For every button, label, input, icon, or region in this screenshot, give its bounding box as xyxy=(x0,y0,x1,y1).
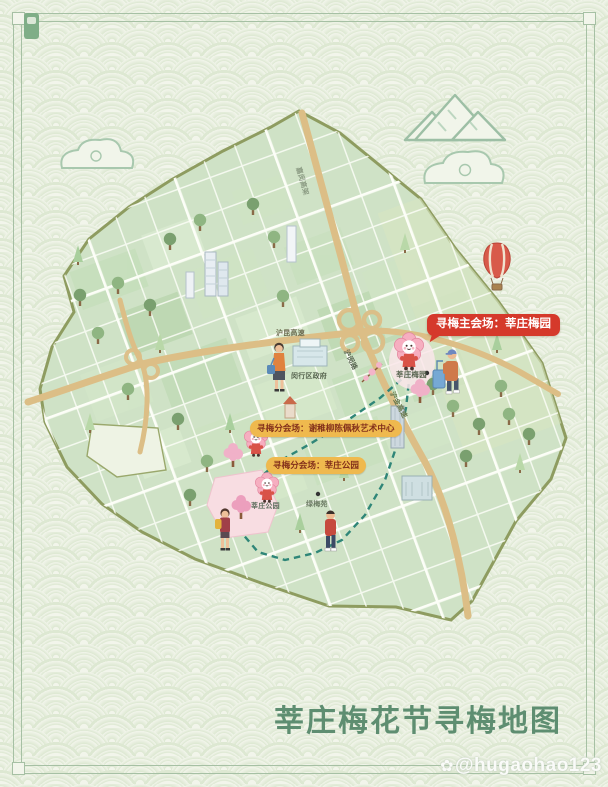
main-venue-label: 寻梅主会场：莘庄梅园 xyxy=(427,314,560,336)
main-venue-label-text: 寻梅主会场：莘庄梅园 xyxy=(436,318,551,330)
watermark-text: @hugaohao123 xyxy=(455,755,602,776)
place-label-xinzhuang-meiyuan: 莘庄梅园 xyxy=(396,369,427,380)
watermark: ✿@hugaohao123 xyxy=(440,755,602,777)
art-center-building xyxy=(285,404,295,418)
sub-venue-label-art-center: 寻梅分会场：谢稚柳陈佩秋艺术中心 xyxy=(250,420,402,437)
place-label-xinzhuang-park: 莘庄公园 xyxy=(251,501,280,511)
sub-venue-label-text: 寻梅分会场：莘庄公园 xyxy=(273,460,359,470)
sub-venue-label-park: 寻梅分会场：莘庄公园 xyxy=(266,457,366,474)
road-label-hukun-expressway: 沪昆高速 xyxy=(276,328,305,338)
poster: 沪昆高速 嘉闵高架 沪闵路 沪金高速 闵行区政府 莘庄梅园 莘庄公园 绿梅苑 寻… xyxy=(0,0,608,787)
place-label-minhang-government: 闵行区政府 xyxy=(291,371,327,381)
sub-venue-label-text: 寻梅分会场：谢稚柳陈佩秋艺术中心 xyxy=(257,423,395,433)
map-illustration xyxy=(0,0,608,787)
cloud-right-icon xyxy=(424,151,503,183)
watermark-logo-icon: ✿ xyxy=(440,758,454,775)
government-building xyxy=(293,346,327,366)
place-label-lvmei-yuan: 绿梅苑 xyxy=(306,499,328,509)
lvmeiyuan-poi-dot xyxy=(316,492,320,496)
cloud-left-icon xyxy=(61,139,133,168)
poster-title: 莘庄梅花节寻梅地图 xyxy=(274,696,562,740)
mountains-icon xyxy=(405,95,505,140)
museum-building xyxy=(402,476,432,500)
hot-air-balloon-icon xyxy=(484,243,510,290)
